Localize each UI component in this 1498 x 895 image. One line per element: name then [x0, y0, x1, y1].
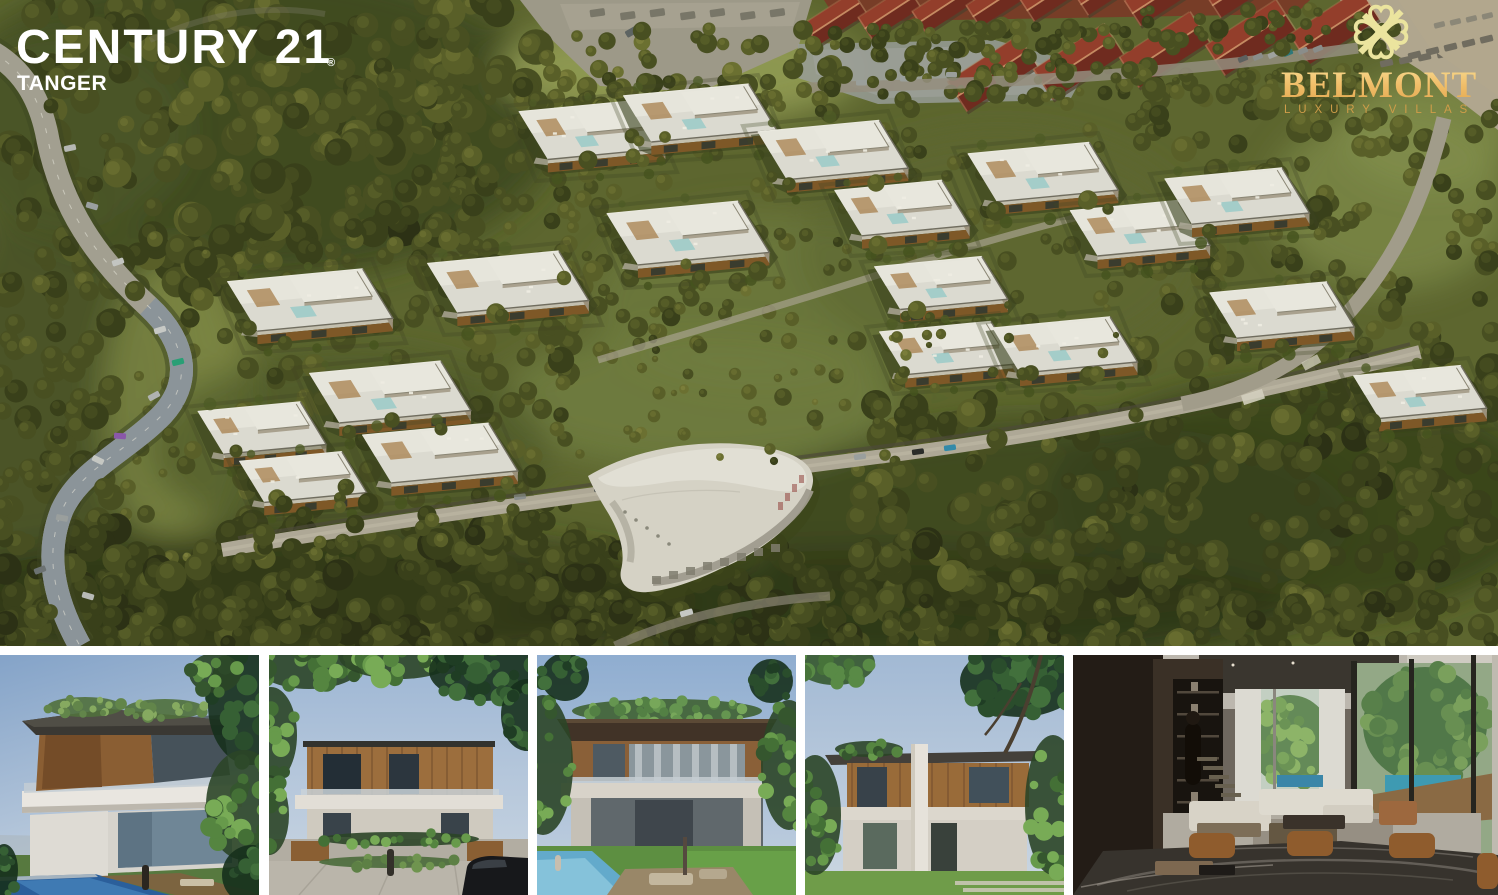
svg-text:®: ® — [327, 57, 335, 69]
svg-text:CENTURY 21: CENTURY 21 — [16, 21, 332, 74]
svg-text:LUXURY VILLAS: LUXURY VILLAS — [1284, 104, 1475, 116]
svg-text:TANGER: TANGER — [17, 72, 107, 95]
svg-text:BELMONT: BELMONT — [1281, 65, 1477, 106]
